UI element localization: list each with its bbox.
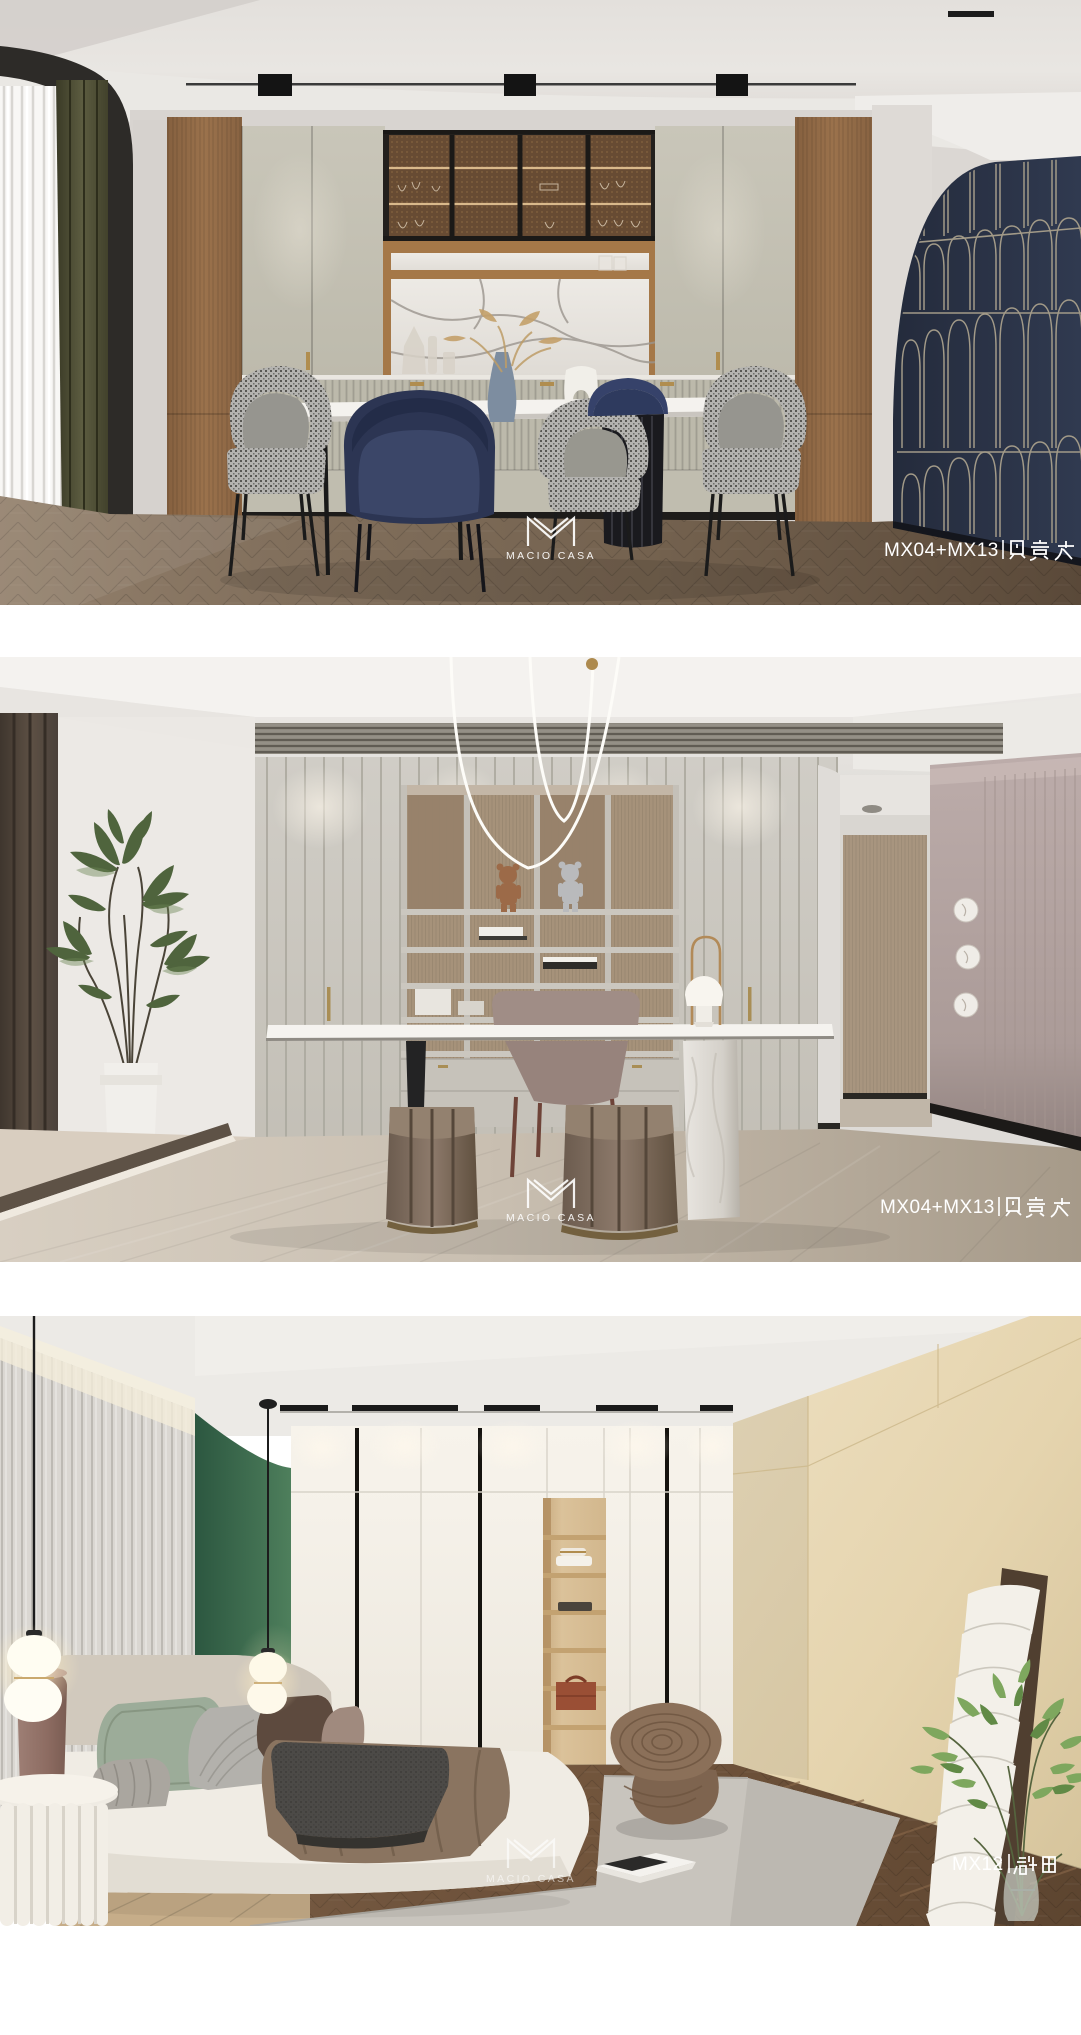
- svg-text:MX04+MX13: MX04+MX13: [880, 1197, 995, 1218]
- svg-text:MACIO CASA: MACIO CASA: [486, 1873, 576, 1885]
- svg-text:MACIO CASA: MACIO CASA: [506, 1212, 596, 1224]
- svg-text:MX04+MX13: MX04+MX13: [884, 540, 999, 561]
- svg-text:MACIO CASA: MACIO CASA: [506, 550, 596, 562]
- svg-text:MX12: MX12: [952, 1854, 1004, 1875]
